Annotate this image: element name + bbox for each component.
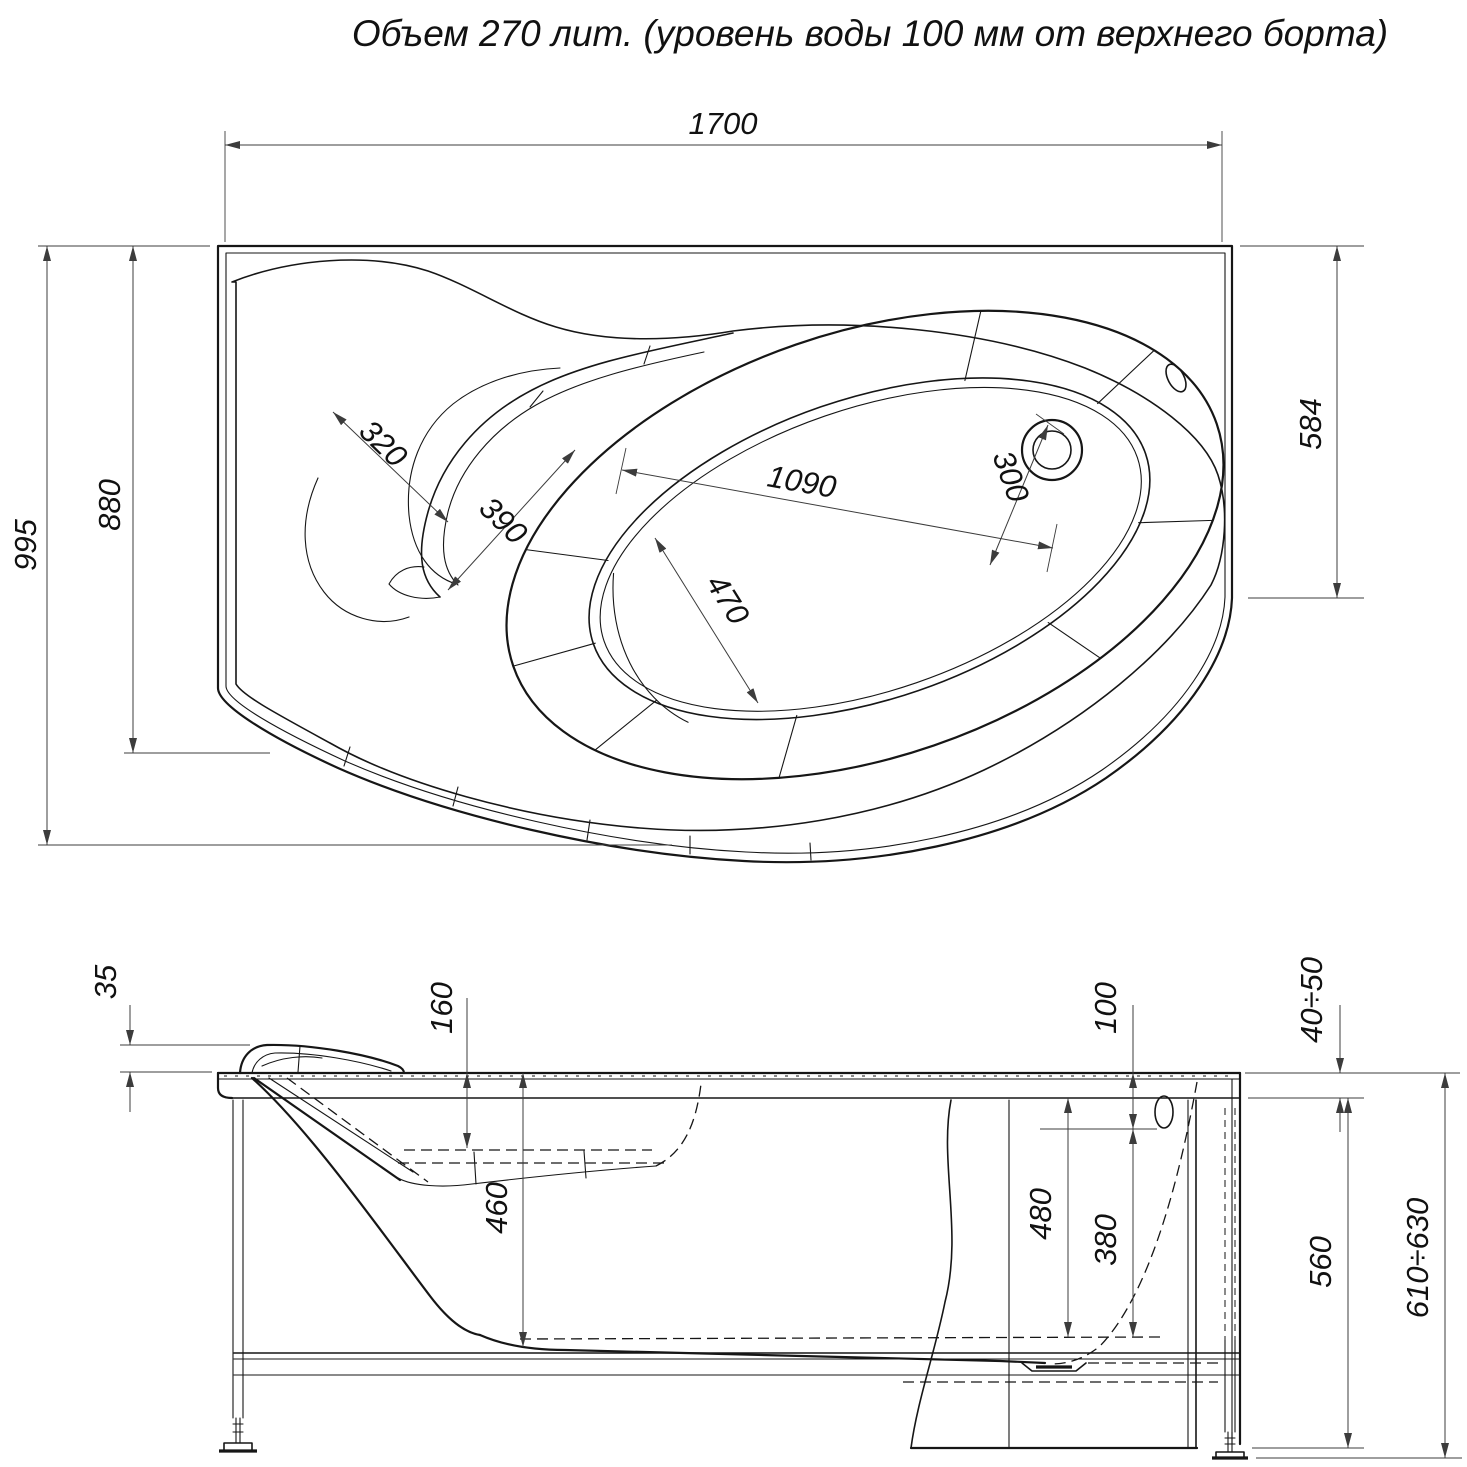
dim-560: 560 — [1252, 1098, 1364, 1448]
dim-label-40-50: 40÷50 — [1294, 957, 1329, 1043]
dim-label-610-630: 610÷630 — [1400, 1198, 1435, 1318]
backrest-band-outer — [422, 333, 733, 597]
frame-leg-left — [219, 1100, 257, 1451]
dim-label-880: 880 — [92, 479, 127, 531]
dim-label-35: 35 — [88, 964, 123, 999]
front-silhouette — [252, 1078, 480, 1335]
left-end-cap — [218, 1073, 232, 1098]
tub-inner-contour — [232, 260, 1225, 830]
tub-outer-offset — [226, 253, 1225, 853]
seat-profile — [398, 1084, 701, 1186]
drain-circle-outer — [1022, 420, 1082, 480]
dim-label-160: 160 — [424, 982, 459, 1034]
dim-label-1700: 1700 — [689, 106, 758, 141]
top-view: 1700 995 880 584 320 390 — [8, 106, 1364, 867]
frame-leg-right — [1212, 1108, 1248, 1458]
basin — [444, 223, 1286, 866]
dim-label-470: 470 — [699, 568, 756, 630]
dim-880: 880 — [92, 246, 270, 753]
seat-front-tip — [389, 567, 440, 599]
dim-label-100: 100 — [1088, 982, 1123, 1034]
dim-40-50: 40÷50 — [1245, 957, 1460, 1132]
dim-label-460: 460 — [479, 1182, 514, 1234]
basin-wall-ticks — [453, 261, 1246, 847]
backrest-band-inner — [443, 352, 704, 585]
dim-1700: 1700 — [225, 106, 1222, 242]
backrest-slope — [254, 1078, 400, 1180]
dim-label-320: 320 — [353, 413, 415, 474]
front-panel — [911, 1100, 1197, 1448]
dim-label-380: 380 — [1088, 1214, 1123, 1266]
dim-label-560: 560 — [1303, 1236, 1338, 1288]
overflow-hole — [1162, 361, 1190, 395]
dim-label-584: 584 — [1293, 398, 1328, 450]
dim-100: 100 — [1088, 982, 1133, 1129]
drawing-title: Объем 270 лит. (уровень воды 100 мм от в… — [352, 13, 1388, 54]
backrest-seat — [305, 333, 733, 621]
bathtub-technical-drawing: Объем 270 лит. (уровень воды 100 мм от в… — [0, 0, 1467, 1467]
basin-rim — [444, 223, 1286, 866]
seat-outer-left — [305, 478, 409, 621]
dim-480: 480 — [1023, 1098, 1068, 1337]
dim-35: 35 — [88, 964, 250, 1112]
dim-380: 380 — [1088, 1129, 1133, 1337]
rim-band-ticks — [344, 747, 811, 860]
dim-390: 390 — [448, 450, 575, 590]
break-line — [911, 1100, 952, 1448]
tub-outer-outline — [218, 246, 1232, 862]
frame-rails — [234, 1353, 1240, 1375]
headrest — [240, 1045, 404, 1073]
dim-label-480: 480 — [1023, 1188, 1058, 1240]
dim-995: 995 — [8, 246, 672, 845]
drawing-page: Объем 270 лит. (уровень воды 100 мм от в… — [0, 0, 1467, 1467]
dim-460: 460 — [479, 1073, 523, 1347]
rear-slope-hidden — [1050, 1082, 1197, 1364]
dim-label-390: 390 — [473, 490, 535, 551]
dim-160: 160 — [424, 982, 467, 1148]
basin-bottom-outer — [545, 312, 1195, 786]
dim-470: 470 — [655, 538, 758, 703]
dim-584: 584 — [1240, 246, 1364, 598]
dim-label-300: 300 — [986, 446, 1037, 507]
drain-circle-inner — [1033, 431, 1071, 469]
dim-610-630: 610÷630 — [1256, 1073, 1462, 1458]
overflow-side — [1155, 1096, 1173, 1128]
dim-label-995: 995 — [8, 518, 43, 570]
side-view: 35 160 460 100 40÷50 480 38 — [88, 957, 1462, 1458]
